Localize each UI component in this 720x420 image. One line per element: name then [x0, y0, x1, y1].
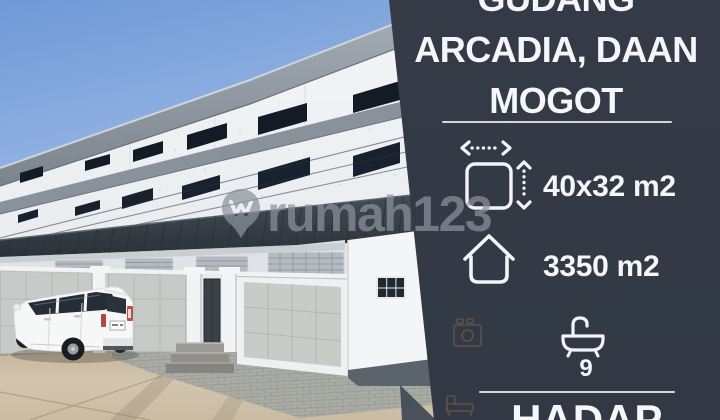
washing-machine-icon — [451, 317, 485, 349]
listing-title: GUDANG ARCADIA, DAAN MOGOT — [398, 0, 714, 126]
section-divider — [479, 391, 675, 393]
entry-steps — [166, 343, 234, 373]
dimensions-icon — [458, 138, 538, 214]
land-area-label: 3350 m2 — [543, 252, 659, 282]
bed-icon — [444, 390, 476, 420]
title-line-1: GUDANG — [398, 0, 714, 24]
bathtub-icon — [556, 312, 610, 358]
listing-card: GUDANG ARCADIA, DAAN MOGOT 40x32 m2 3350… — [0, 0, 720, 420]
bathroom-count: 9 — [568, 357, 604, 381]
facing-label: HADAP — [462, 397, 712, 420]
title-line-3: MOGOT — [398, 75, 714, 126]
title-underline — [442, 121, 672, 123]
wall-window — [376, 276, 406, 299]
house-icon — [462, 230, 516, 288]
property-photo — [0, 0, 440, 420]
building-size-label: 40x32 m2 — [543, 172, 676, 202]
title-line-2: ARCADIA, DAAN — [398, 24, 714, 75]
